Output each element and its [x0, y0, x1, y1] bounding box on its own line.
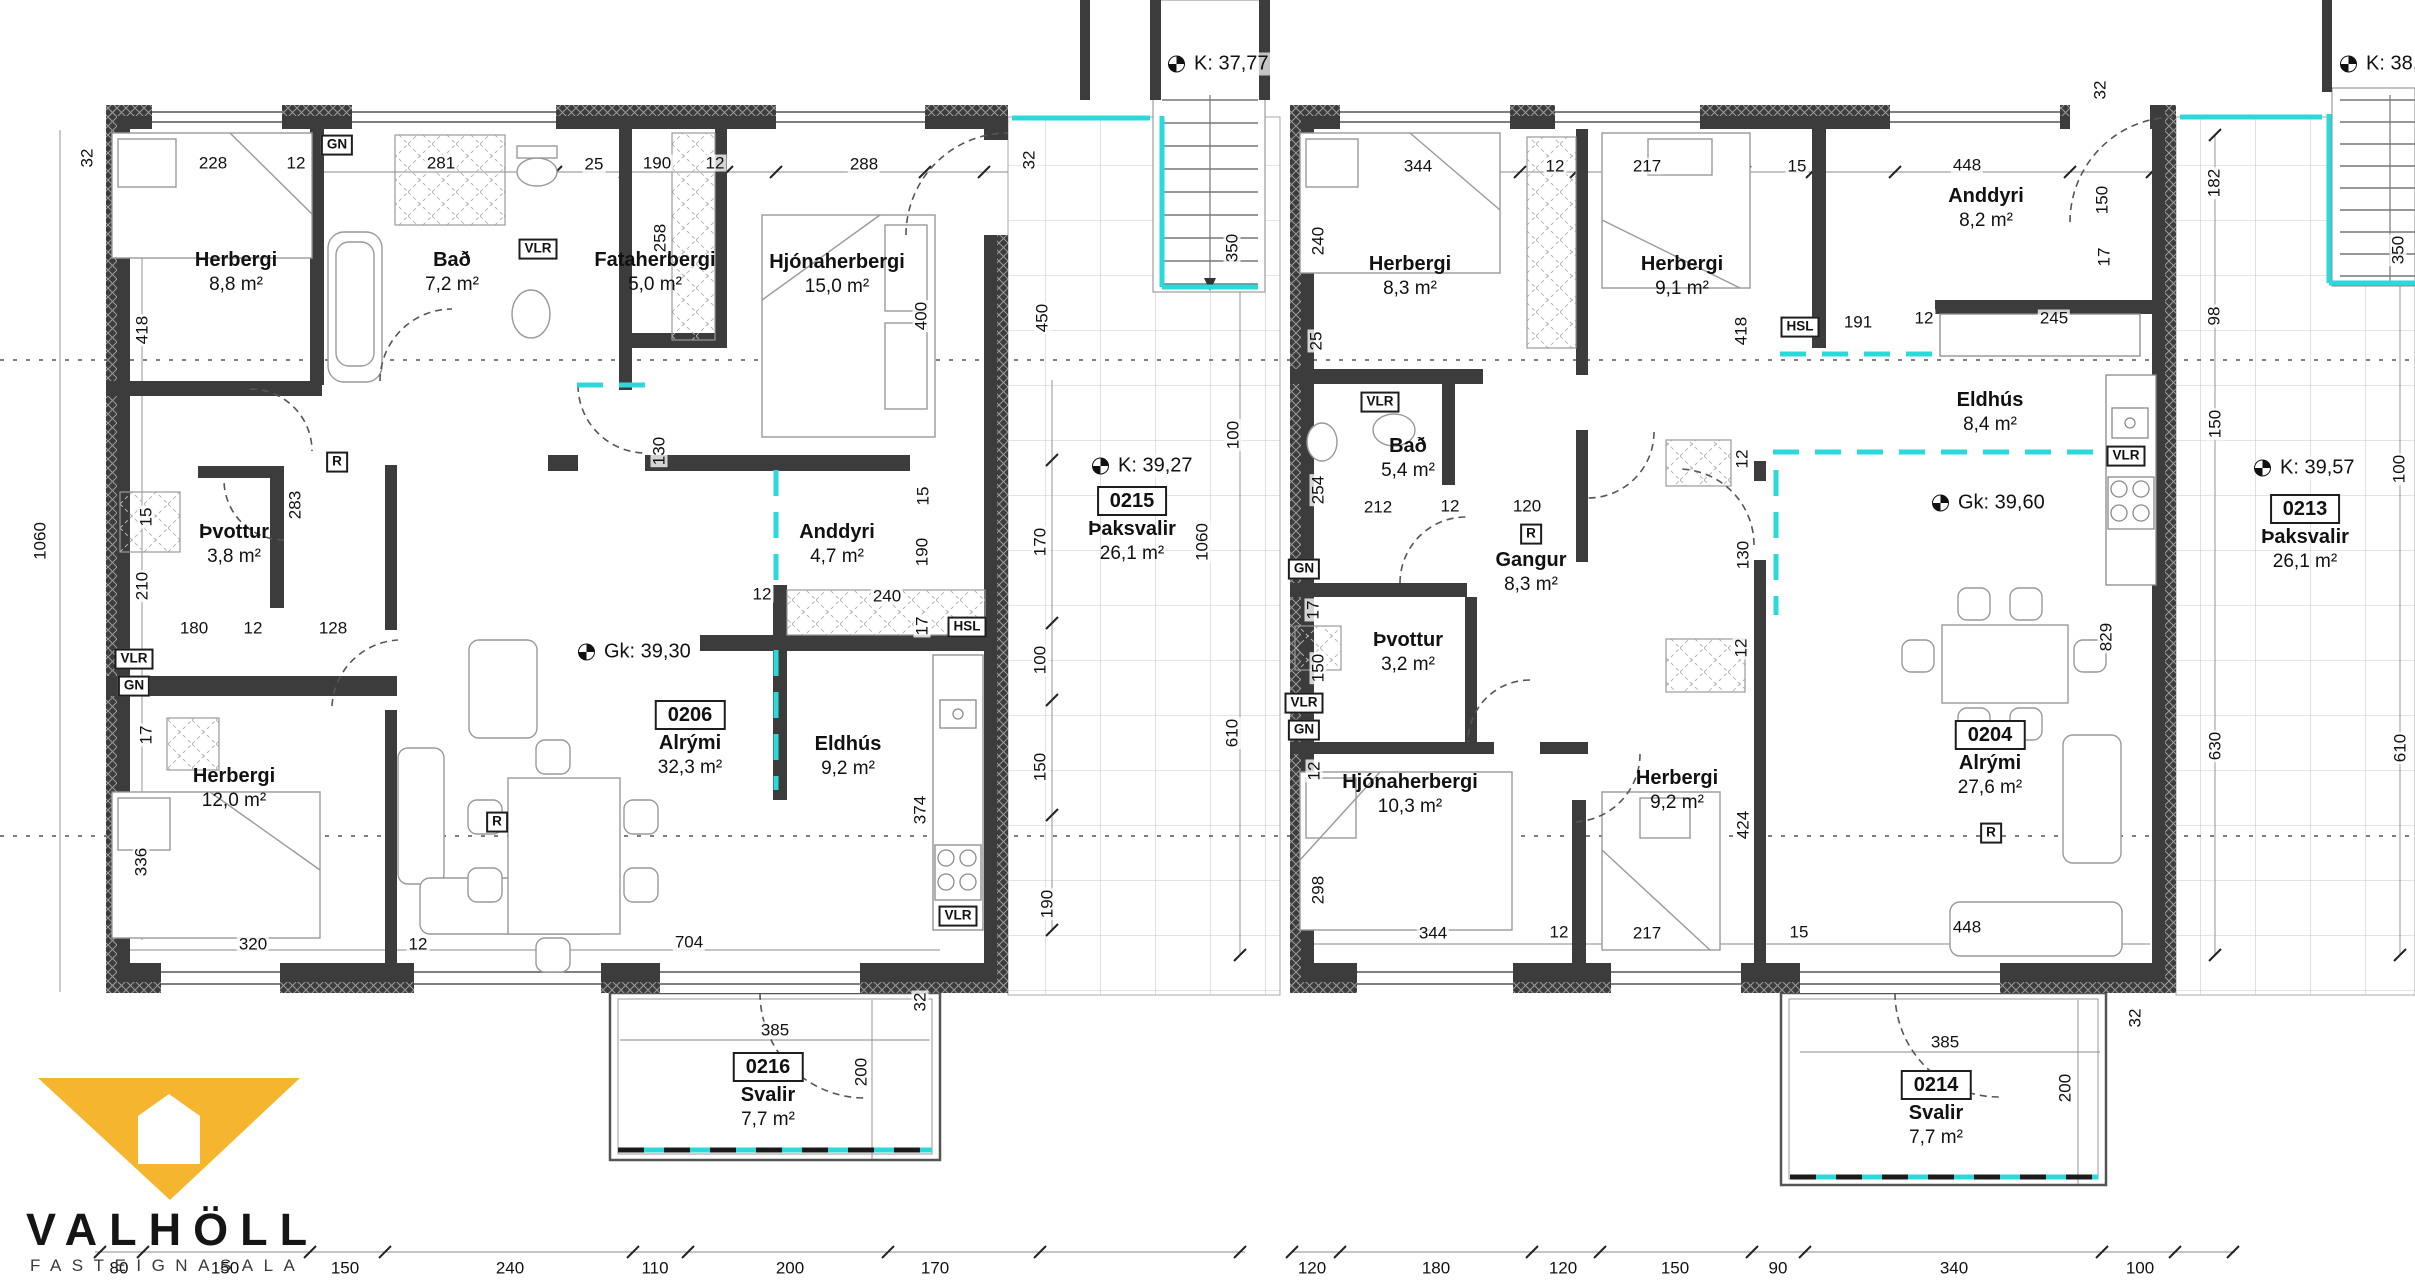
level-marker: Gk: 39,30	[578, 641, 693, 664]
dimension-label: 200	[774, 1260, 806, 1277]
utility-tag: GN	[1288, 720, 1320, 741]
dimension-label: 15	[1786, 158, 1809, 175]
dimension-label: 298	[1310, 874, 1327, 906]
room-area: 8,2 m²	[1948, 209, 2024, 233]
unit-tag: 0215Þaksvalir26,1 m²	[1088, 486, 1176, 566]
unit-area: 27,6 m²	[1955, 776, 2026, 800]
room-area: 10,3 m²	[1342, 795, 1478, 819]
level-marker: K: 39,57	[2254, 457, 2357, 480]
room-label: Gangur8,3 m²	[1495, 547, 1566, 597]
room-label: Hjónaherbergi15,0 m²	[769, 249, 905, 299]
unit-name: Svalir	[1901, 1100, 1972, 1126]
dimension-label: 190	[914, 536, 931, 568]
benchmark-icon	[1168, 56, 1185, 73]
room-area: 9,1 m²	[1641, 277, 1723, 301]
dimension-label: 210	[134, 570, 151, 602]
room-area: 3,2 m²	[1373, 653, 1443, 677]
dimension-label: 12	[1439, 498, 1462, 515]
dimension-label: 190	[1039, 888, 1056, 920]
logo-name: VALHÖLL	[26, 1204, 319, 1256]
dimension-label: 283	[287, 489, 304, 521]
logo: VALHÖLL FASTEIGNASALA	[22, 1072, 342, 1280]
dimension-label: 320	[237, 936, 269, 953]
dimension-label: 217	[1631, 158, 1663, 175]
utility-tag: VLR	[115, 649, 154, 670]
dimension-label: 100	[1032, 644, 1049, 676]
level-value: K: 37,77	[1192, 53, 1271, 76]
room-label: Eldhús9,2 m²	[815, 731, 882, 781]
room-label: Herbergi8,8 m²	[195, 247, 277, 297]
room-name: Bað	[1381, 433, 1435, 459]
unit-tag: 0216Svalir7,7 m²	[733, 1052, 804, 1132]
room-area: 4,7 m²	[799, 545, 875, 569]
unit-tag: 0213Þaksvalir26,1 m²	[2261, 494, 2349, 574]
dimension-label: 12	[1913, 310, 1936, 327]
unit-area: 32,3 m²	[655, 756, 726, 780]
room-name: Hjónaherbergi	[769, 249, 905, 275]
room-area: 5,0 m²	[594, 273, 715, 297]
benchmark-icon	[578, 644, 595, 661]
dimension-label: 418	[1733, 315, 1750, 347]
dimension-label: 424	[1735, 809, 1752, 841]
dimension-label: 150	[1310, 652, 1327, 684]
dimension-label: 17	[1305, 599, 1322, 622]
room-label: Anddyri8,2 m²	[1948, 183, 2024, 233]
unit-area: 7,7 m²	[733, 1108, 804, 1132]
unit-name: Alrými	[1955, 750, 2026, 776]
dimension-label: 32	[2127, 1007, 2144, 1030]
utility-tag: VLR	[2107, 446, 2146, 467]
room-area: 8,3 m²	[1369, 277, 1451, 301]
level-value: Gk: 39,30	[602, 641, 693, 664]
level-value: K: 39,27	[1116, 455, 1195, 478]
room-name: Herbergi	[1636, 765, 1718, 791]
utility-tag: HSL	[948, 617, 987, 638]
logo-triangle-icon	[22, 1072, 342, 1202]
dimension-label: 100	[2391, 453, 2408, 485]
unit-tag: 0206Alrými32,3 m²	[655, 700, 726, 780]
dimension-label: 17	[2096, 246, 2113, 269]
unit-area: 26,1 m²	[1088, 542, 1176, 566]
room-area: 5,4 m²	[1381, 459, 1435, 483]
dimension-label: 340	[1938, 1260, 1970, 1277]
dimension-label: 12	[1548, 924, 1571, 941]
benchmark-icon	[2254, 460, 2271, 477]
room-name: Herbergi	[195, 247, 277, 273]
dimension-label: 240	[871, 588, 903, 605]
dimension-label: 610	[1224, 717, 1241, 749]
room-label: Anddyri4,7 m²	[799, 519, 875, 569]
dimension-label: 12	[704, 155, 727, 172]
unit-number: 0204	[1955, 720, 2026, 750]
dimension-label: 450	[1034, 302, 1051, 334]
unit-tag: 0204Alrými27,6 m²	[1955, 720, 2026, 800]
dimension-label: 180	[1420, 1260, 1452, 1277]
unit-name: Þaksvalir	[1088, 516, 1176, 542]
dimension-label: 25	[583, 156, 606, 173]
dimension-label: 191	[1842, 314, 1874, 331]
room-name: Eldhús	[815, 731, 882, 757]
room-label: Eldhús8,4 m²	[1957, 387, 2024, 437]
benchmark-icon	[2340, 56, 2357, 73]
dimension-label: 212	[1362, 499, 1394, 516]
utility-tag: GN	[321, 135, 353, 156]
room-label: Fataherbergi5,0 m²	[594, 247, 715, 297]
dimension-label: 418	[134, 314, 151, 346]
level-marker: K: 39,27	[1092, 455, 1195, 478]
dimension-label: 350	[1224, 232, 1241, 264]
room-area: 8,4 m²	[1957, 413, 2024, 437]
dimension-label: 150	[1659, 1260, 1691, 1277]
dimension-label: 182	[2206, 167, 2223, 199]
dimension-label: 1060	[1194, 521, 1211, 563]
dimension-label: 385	[759, 1022, 791, 1039]
unit-area: 26,1 m²	[2261, 550, 2349, 574]
room-label: Herbergi12,0 m²	[193, 763, 275, 813]
room-name: Þvottur	[199, 519, 269, 545]
unit-number: 0214	[1901, 1070, 1972, 1100]
dimension-label: 245	[2038, 310, 2070, 327]
dimension-label: 130	[1735, 539, 1752, 571]
room-area: 9,2 m²	[815, 757, 882, 781]
dimension-label: 17	[914, 615, 931, 638]
room-label: Þvottur3,2 m²	[1373, 627, 1443, 677]
room-area: 7,2 m²	[425, 273, 479, 297]
room-name: Þvottur	[1373, 627, 1443, 653]
room-name: Gangur	[1495, 547, 1566, 573]
utility-tag: HSL	[1781, 317, 1820, 338]
room-label: Bað5,4 m²	[1381, 433, 1435, 483]
dimension-label: 281	[425, 155, 457, 172]
dimension-label: 12	[751, 586, 774, 603]
unit-name: Svalir	[733, 1082, 804, 1108]
utility-tag: R	[1980, 823, 2002, 844]
benchmark-icon	[1932, 495, 1949, 512]
dimension-label: 610	[2392, 732, 2409, 764]
room-label: Herbergi8,3 m²	[1369, 251, 1451, 301]
level-value: K: 38,07	[2364, 53, 2415, 76]
dimension-label: 25	[1308, 330, 1325, 353]
dimension-label: 130	[651, 435, 668, 467]
dimension-label: 12	[1544, 158, 1567, 175]
dimension-label: 344	[1417, 925, 1449, 942]
room-name: Herbergi	[1369, 251, 1451, 277]
dimension-label: 400	[913, 300, 930, 332]
utility-tag: VLR	[1285, 693, 1324, 714]
room-name: Hjónaherbergi	[1342, 769, 1478, 795]
utility-tag: GN	[1288, 559, 1320, 580]
plan-drawing	[0, 0, 2415, 1280]
dimension-label: 98	[2206, 305, 2223, 328]
dimension-label: 90	[1767, 1260, 1790, 1277]
utility-tag: VLR	[1361, 392, 1400, 413]
dimension-label: 374	[912, 794, 929, 826]
dimension-label: 120	[1511, 498, 1543, 515]
dimension-label: 32	[1021, 149, 1038, 172]
dimension-label: 240	[1310, 225, 1327, 257]
dimension-label: 630	[2207, 730, 2224, 762]
room-area: 15,0 m²	[769, 275, 905, 299]
dimension-label: 12	[285, 155, 308, 172]
unit-name: Alrými	[655, 730, 726, 756]
dimension-label: 344	[1402, 158, 1434, 175]
level-marker: Gk: 39,60	[1932, 492, 2047, 515]
dimension-label: 15	[915, 485, 932, 508]
room-label: Herbergi9,2 m²	[1636, 765, 1718, 815]
dimension-label: 120	[1296, 1260, 1328, 1277]
utility-tag: VLR	[939, 906, 978, 927]
room-label: Herbergi9,1 m²	[1641, 251, 1723, 301]
dimension-label: 258	[652, 222, 669, 254]
dimension-label: 448	[1951, 157, 1983, 174]
room-name: Bað	[425, 247, 479, 273]
room-area: 8,3 m²	[1495, 573, 1566, 597]
dimension-label: 288	[848, 156, 880, 173]
level-value: Gk: 39,60	[1956, 492, 2047, 515]
unit-number: 0215	[1097, 486, 1168, 516]
utility-tag: VLR	[519, 239, 558, 260]
utility-tag: R	[326, 452, 348, 473]
room-label: Hjónaherbergi10,3 m²	[1342, 769, 1478, 819]
level-marker: K: 37,77	[1168, 53, 1271, 76]
unit-tag: 0214Svalir7,7 m²	[1901, 1070, 1972, 1150]
dimension-label: 704	[673, 934, 705, 951]
dimension-label: 1060	[32, 520, 49, 562]
unit-area: 7,7 m²	[1901, 1126, 1972, 1150]
room-area: 9,2 m²	[1636, 791, 1718, 815]
dimension-label: 128	[317, 620, 349, 637]
level-marker: K: 38,07	[2340, 53, 2415, 76]
dimension-label: 385	[1929, 1034, 1961, 1051]
dimension-label: 217	[1631, 925, 1663, 942]
unit-number: 0206	[655, 700, 726, 730]
room-name: Anddyri	[1948, 183, 2024, 209]
dimension-label: 170	[1032, 526, 1049, 558]
dimension-label: 12	[1733, 637, 1750, 660]
level-value: K: 39,57	[2278, 457, 2357, 480]
dimension-label: 190	[641, 155, 673, 172]
dimension-label: 12	[242, 620, 265, 637]
dimension-label: 448	[1951, 919, 1983, 936]
room-area: 3,8 m²	[199, 545, 269, 569]
dimension-label: 254	[1310, 474, 1327, 506]
room-name: Anddyri	[799, 519, 875, 545]
dimension-label: 120	[1547, 1260, 1579, 1277]
dimension-label: 336	[133, 846, 150, 878]
dimension-label: 240	[494, 1260, 526, 1277]
dimension-label: 12	[407, 936, 430, 953]
dimension-label: 110	[639, 1260, 670, 1277]
logo-subtitle: FASTEIGNASALA	[30, 1256, 305, 1276]
utility-tag: GN	[118, 676, 150, 697]
dimension-label: 150	[2094, 184, 2111, 216]
dimension-label: 15	[138, 506, 155, 529]
benchmark-icon	[1092, 458, 1109, 475]
room-label: Bað7,2 m²	[425, 247, 479, 297]
room-name: Herbergi	[193, 763, 275, 789]
dimension-label: 228	[197, 155, 229, 172]
dimension-label: 829	[2098, 621, 2115, 653]
unit-number: 0213	[2270, 494, 2341, 524]
dimension-label: 170	[919, 1260, 951, 1277]
room-area: 8,8 m²	[195, 273, 277, 297]
room-name: Herbergi	[1641, 251, 1723, 277]
dimension-label: 32	[79, 147, 96, 170]
floor-plan: Herbergi8,8 m²Bað7,2 m²Fataherbergi5,0 m…	[0, 0, 2415, 1280]
room-label: Þvottur3,8 m²	[199, 519, 269, 569]
unit-name: Þaksvalir	[2261, 524, 2349, 550]
dimension-label: 12	[1734, 448, 1751, 471]
dimension-label: 200	[2057, 1072, 2074, 1104]
dimension-label: 350	[2390, 234, 2407, 266]
room-area: 12,0 m²	[193, 789, 275, 813]
dimension-label: 150	[1032, 751, 1049, 783]
dimension-label: 150	[2207, 408, 2224, 440]
room-name: Eldhús	[1957, 387, 2024, 413]
utility-tag: R	[1520, 524, 1542, 545]
dimension-label: 32	[2092, 79, 2109, 102]
dimension-label: 100	[1225, 419, 1242, 451]
dimension-label: 180	[178, 620, 210, 637]
dimension-label: 12	[1306, 760, 1323, 783]
unit-number: 0216	[733, 1052, 804, 1082]
utility-tag: R	[486, 812, 508, 833]
dimension-label: 200	[853, 1056, 870, 1088]
dimension-label: 32	[912, 991, 929, 1014]
dimension-label: 100	[2124, 1260, 2156, 1277]
dimension-label: 17	[138, 724, 155, 747]
dimension-label: 15	[1788, 924, 1811, 941]
